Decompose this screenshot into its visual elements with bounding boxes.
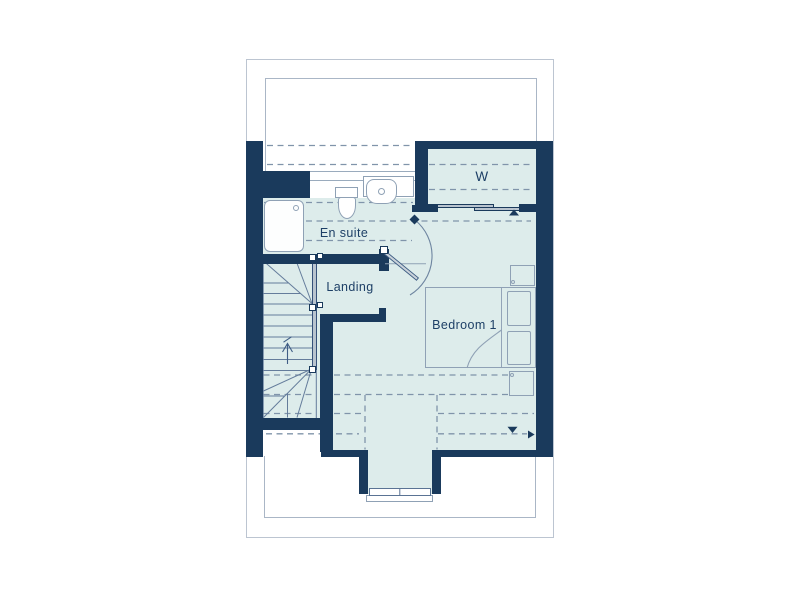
- wardrobe-sliding-door: [474, 207, 520, 210]
- wall-south-left: [321, 450, 360, 457]
- stair-newel-post: [309, 304, 316, 311]
- wall-landing-jamb: [379, 308, 386, 314]
- wall-dormer-east: [432, 450, 442, 494]
- cabinet-knob: [510, 373, 514, 377]
- dormer-window: [369, 488, 431, 496]
- floorplan-canvas: W En suite Landing Bedroom 1: [0, 0, 800, 600]
- room-label-ensuite: En suite: [294, 226, 394, 240]
- wall-dormer-west: [359, 450, 369, 494]
- cabinet-knob: [511, 280, 515, 284]
- wall-ensuite-south: [262, 254, 385, 264]
- stair-newel-post: [309, 366, 316, 373]
- wall-under-stairs: [263, 418, 323, 430]
- room-label-landing: Landing: [300, 280, 400, 294]
- wall-wardrobe-door-jamb-left: [421, 204, 438, 212]
- washbasin-drain: [378, 188, 385, 195]
- wall-wardrobe-north: [421, 141, 553, 149]
- stair-newel-post: [317, 302, 323, 308]
- wall-east-band: [536, 141, 553, 457]
- stair-newel-post: [309, 254, 316, 261]
- wall-ensuite-bedroom-divider: [415, 141, 428, 205]
- pillow: [507, 331, 531, 365]
- wall-wardrobe-door-jamb-right: [519, 204, 536, 212]
- wall-ensuite-northwest-block: [248, 171, 310, 198]
- wall-open-area-west: [320, 314, 333, 452]
- stair-newel-post: [317, 253, 323, 259]
- wall-south-right: [440, 450, 536, 457]
- stair-handrail: [312, 262, 317, 370]
- dormer-window-sill: [366, 495, 433, 502]
- room-label-wardrobe: W: [467, 169, 497, 184]
- door-hinge-post: [380, 246, 388, 254]
- room-label-bedroom1: Bedroom 1: [414, 318, 515, 332]
- shower-drain: [293, 205, 299, 211]
